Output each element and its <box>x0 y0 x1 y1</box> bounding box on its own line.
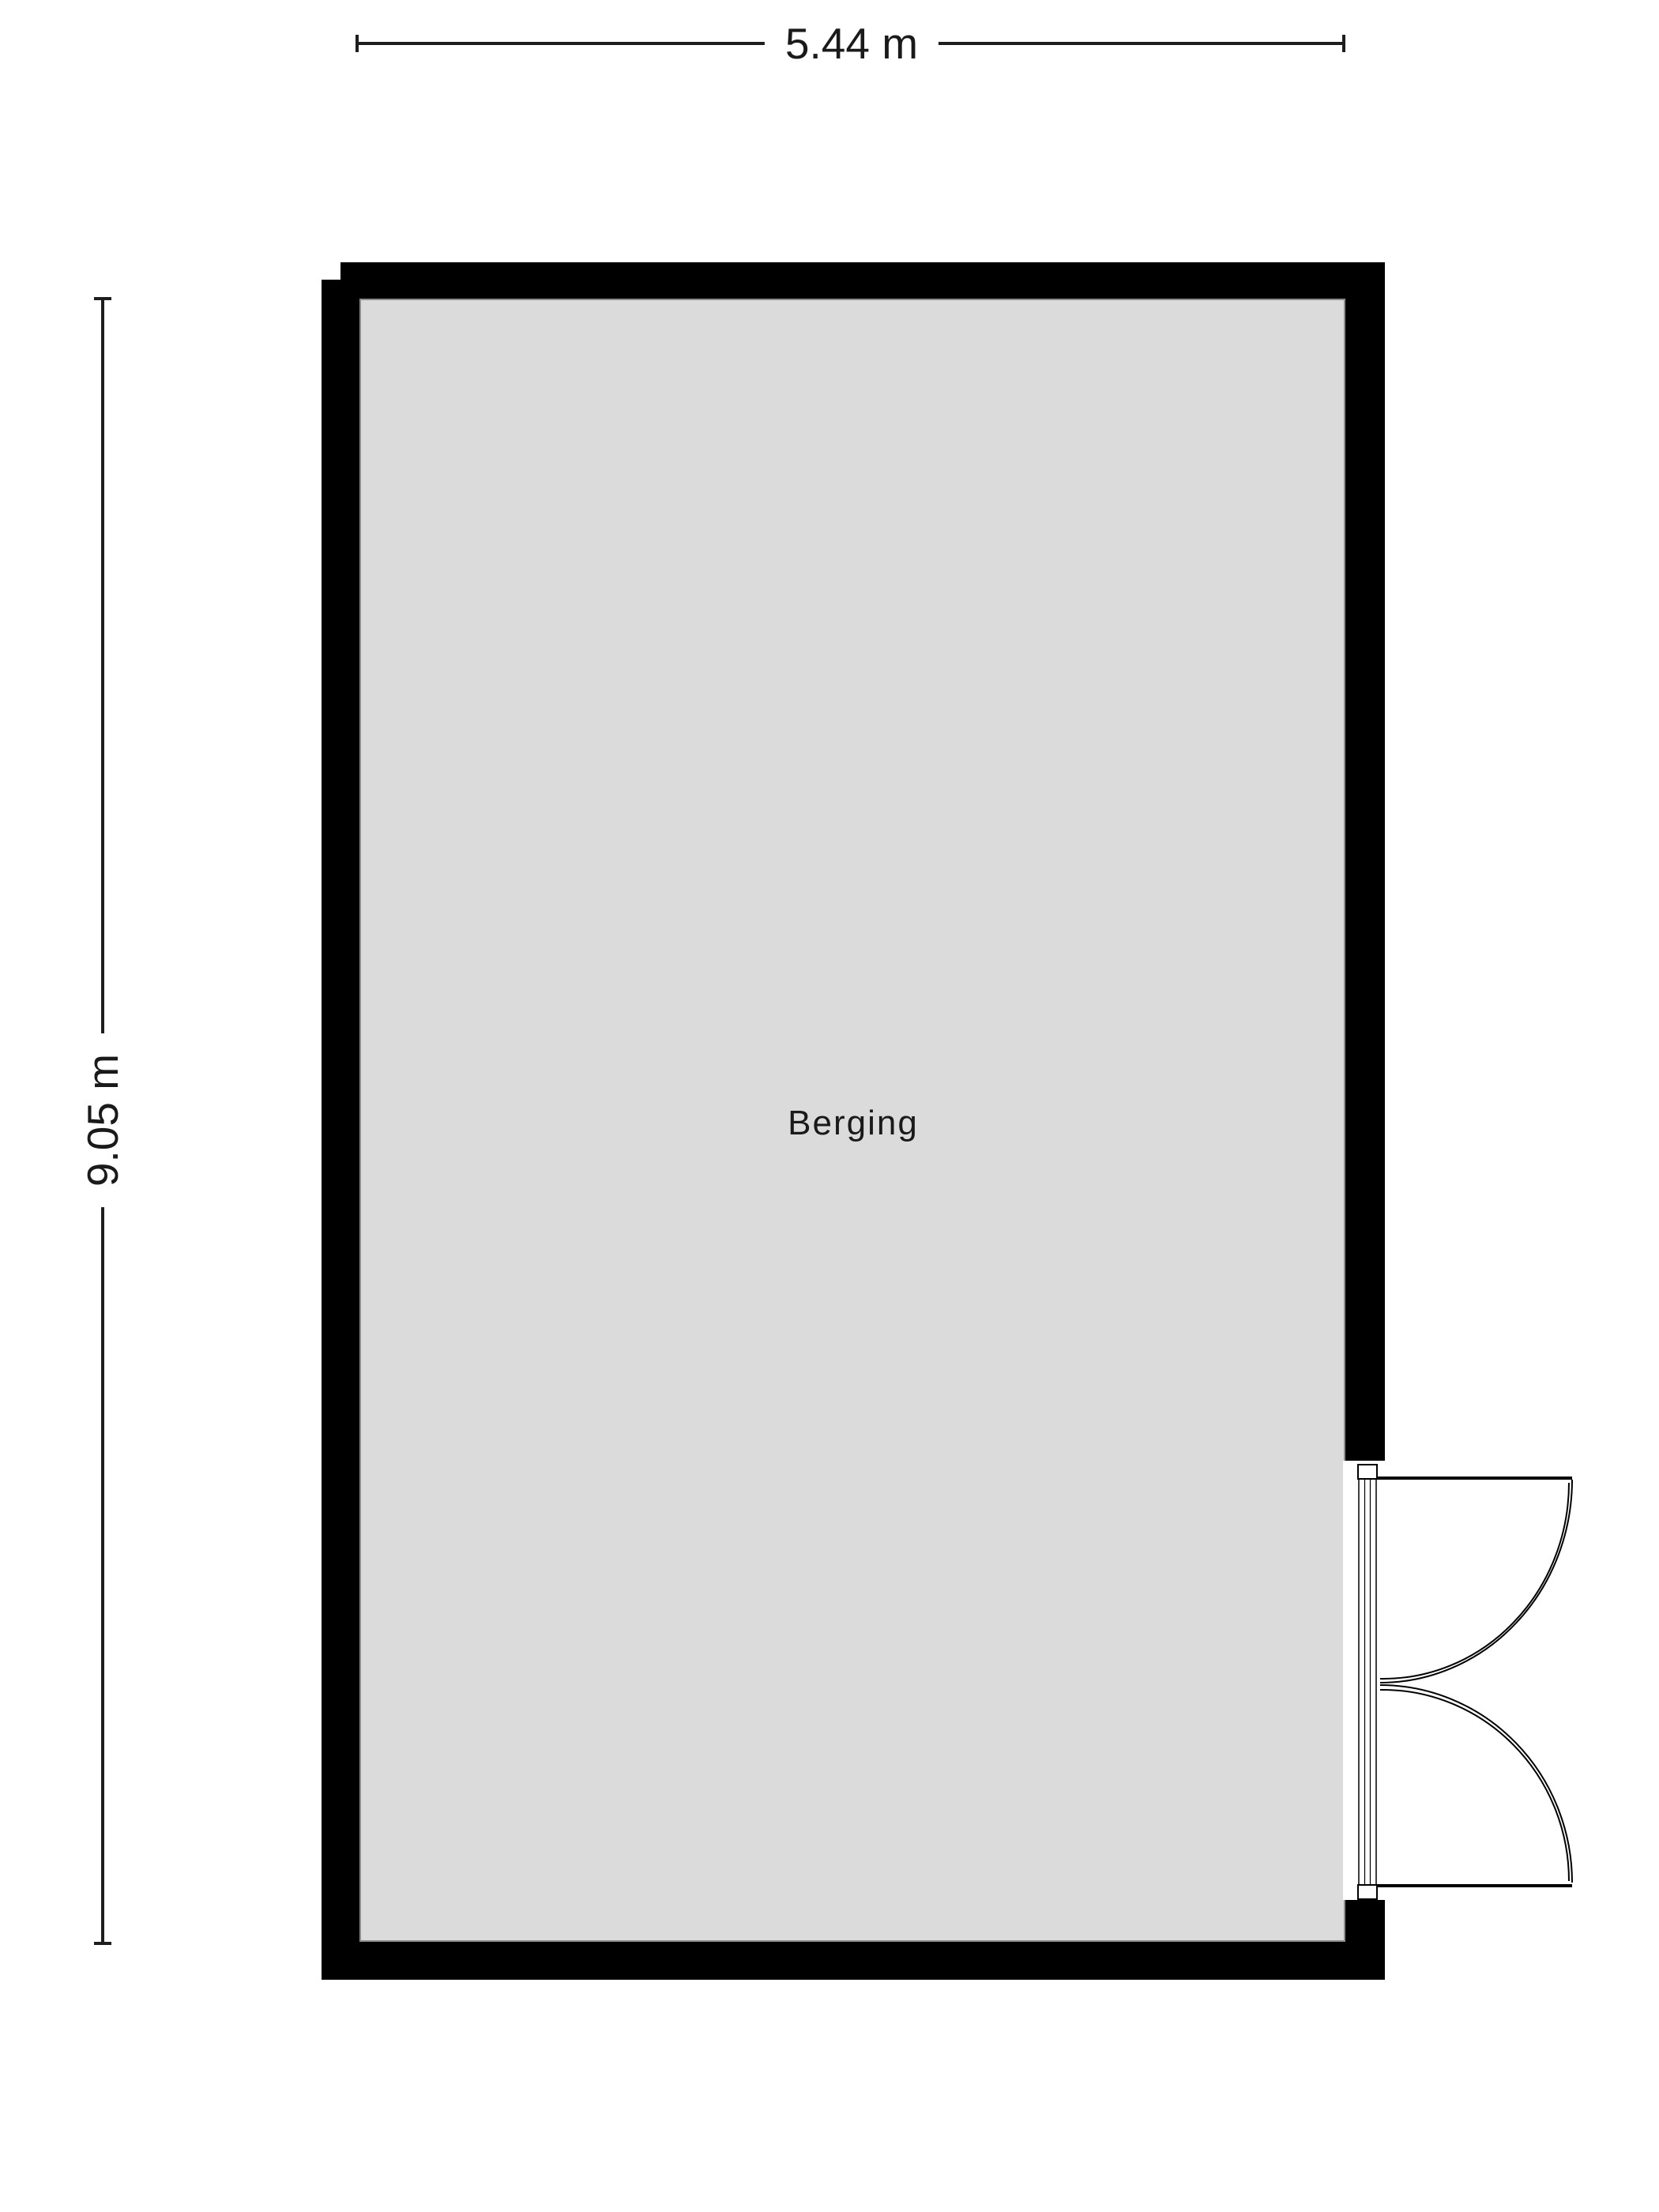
wall-corner-notch <box>322 262 340 280</box>
left-dimension-tick-top <box>94 297 111 300</box>
left-dimension-tick-bottom <box>94 1942 111 1945</box>
room-name-label: Berging <box>788 1104 919 1143</box>
top-dimension-tick-right <box>1342 35 1345 52</box>
door-frame <box>1359 1479 1376 1885</box>
double-door-symbol <box>1335 1454 1588 1908</box>
door-jamb-bottom <box>1358 1885 1377 1899</box>
width-dimension-label: 5.44 m <box>765 18 939 69</box>
door-swing-arc-bottom-inner <box>1380 1690 1569 1881</box>
top-dimension-tick-left <box>355 35 359 52</box>
door-jamb-top <box>1358 1465 1377 1479</box>
floorplan-canvas: 5.44 m 9.05 m Berging <box>0 0 1659 2212</box>
door-swing-arc-top-inner <box>1380 1483 1569 1679</box>
height-dimension-label: 9.05 m <box>77 1033 128 1207</box>
